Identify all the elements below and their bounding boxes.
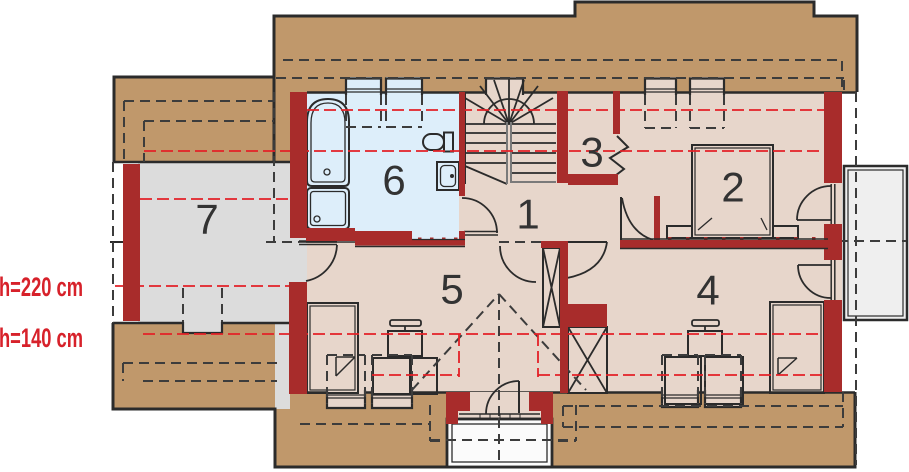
svg-text:3: 3 [580,129,603,176]
svg-text:1: 1 [516,191,539,238]
svg-text:4: 4 [696,267,719,314]
svg-text:7: 7 [195,196,218,243]
svg-text:6: 6 [382,157,405,204]
svg-text:h=140 cm: h=140 cm [0,323,83,353]
svg-text:h=220 cm: h=220 cm [0,272,83,302]
svg-text:2: 2 [721,164,744,211]
svg-text:5: 5 [440,266,463,313]
